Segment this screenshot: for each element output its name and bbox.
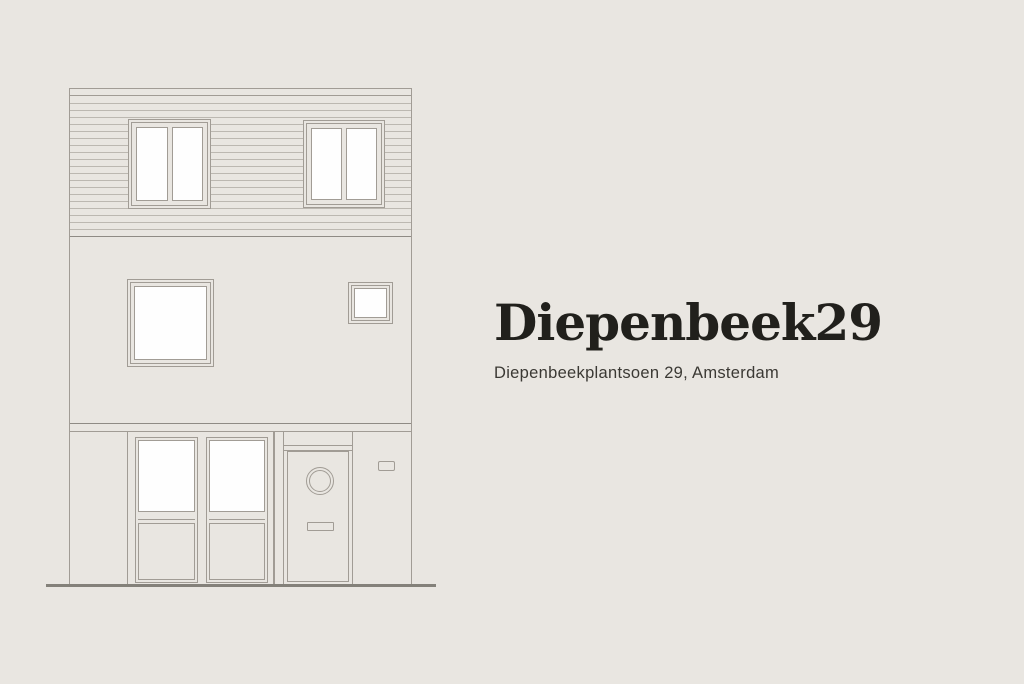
storefront-rail: [138, 512, 195, 520]
roof-fascia: [70, 89, 411, 96]
window-pane: [346, 128, 377, 200]
house-facade: [69, 88, 412, 585]
letterbox-slot: [307, 522, 334, 531]
front-door-assembly: [283, 432, 353, 586]
house-elevation-illustration: [0, 0, 480, 684]
top-right-window: [303, 120, 385, 208]
window-pane: [172, 127, 204, 201]
middle-large-window: [127, 279, 214, 367]
storefront-unit-left: [135, 437, 198, 583]
page-title: Diepenbeek29: [494, 297, 934, 349]
window-frame: [351, 285, 390, 321]
window-frame: [131, 122, 208, 206]
storefront-glass-upper: [209, 440, 265, 512]
window-pane: [136, 127, 168, 201]
storefront-rail: [209, 512, 265, 520]
window-pane: [134, 286, 207, 360]
window-frame: [306, 123, 382, 205]
hero-text-block: Diepenbeek29 Diepenbeekplantsoen 29, Ams…: [494, 297, 934, 383]
storefront-panel-lower: [138, 523, 195, 580]
page-subtitle: Diepenbeekplantsoen 29, Amsterdam: [494, 364, 934, 383]
window-frame: [130, 282, 211, 364]
pilaster-line: [274, 432, 275, 586]
window-pane: [311, 128, 342, 200]
porthole-window: [306, 467, 334, 495]
floor-separator-band: [70, 423, 411, 432]
storefront-window-assembly: [127, 432, 274, 586]
door-transom: [284, 432, 352, 446]
storefront-unit-right: [206, 437, 268, 583]
middle-small-window: [348, 282, 393, 324]
wall-plaque: [378, 461, 395, 471]
storefront-glass-upper: [138, 440, 195, 512]
storefront-panel-lower: [209, 523, 265, 580]
window-pane: [354, 288, 387, 318]
front-door: [287, 451, 349, 582]
top-left-window: [128, 119, 211, 209]
ground-line: [46, 584, 436, 587]
